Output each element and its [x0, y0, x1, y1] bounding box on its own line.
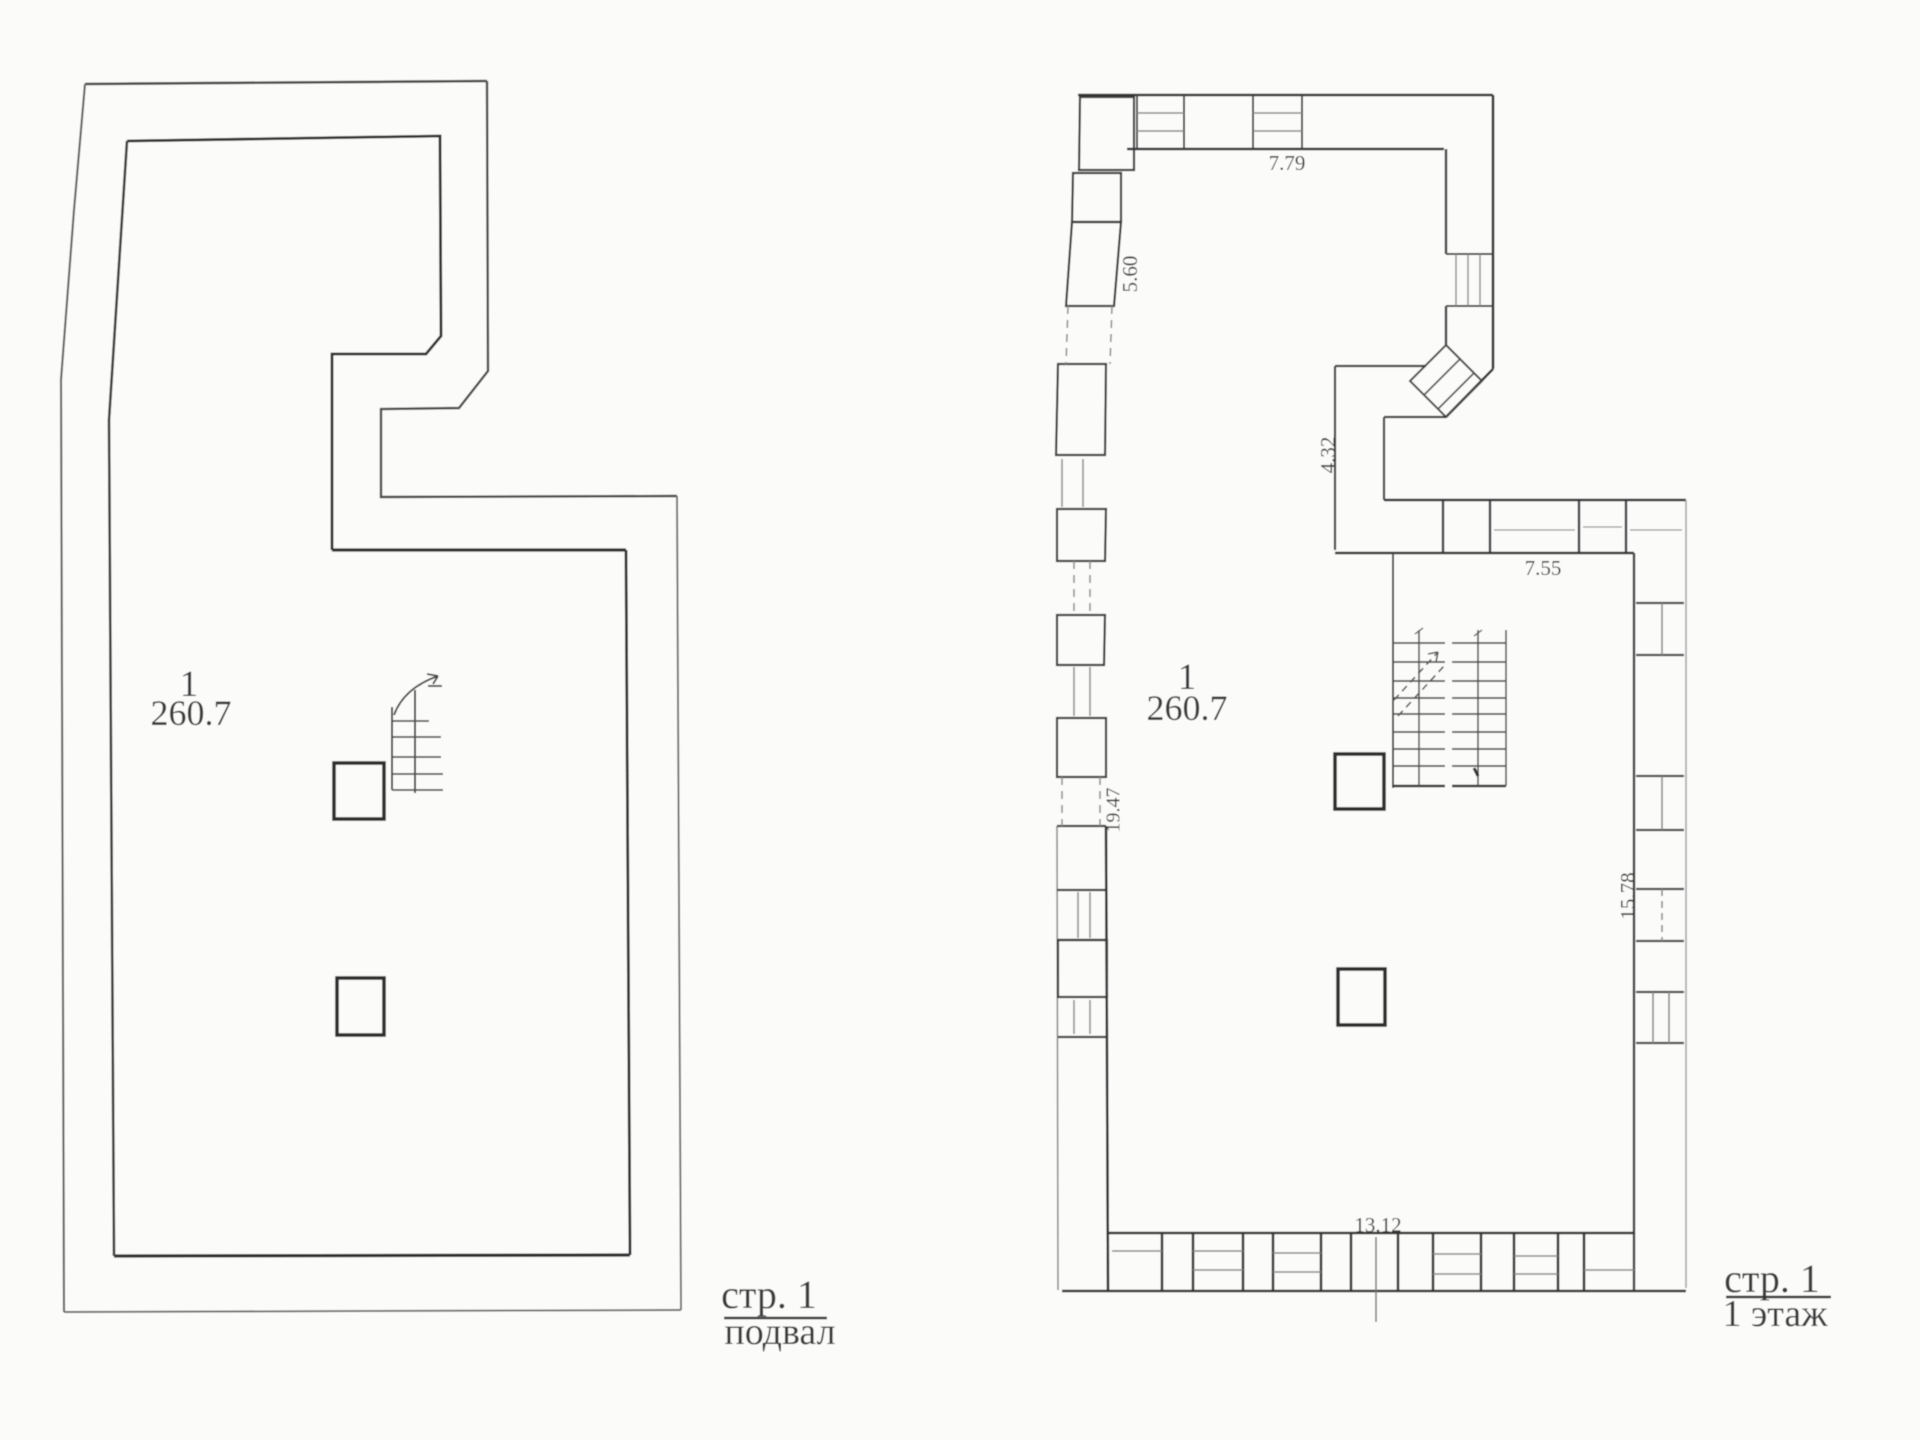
svg-text:1 этаж: 1 этаж [1722, 1293, 1828, 1335]
svg-text:19.47: 19.47 [1103, 788, 1125, 833]
svg-text:4.32: 4.32 [1316, 437, 1340, 474]
svg-text:260.7: 260.7 [151, 693, 232, 733]
svg-text:15.78: 15.78 [1616, 872, 1640, 919]
svg-text:5.60: 5.60 [1118, 256, 1142, 293]
svg-text:подвал: подвал [724, 1311, 835, 1353]
svg-text:260.7: 260.7 [1147, 688, 1228, 728]
svg-text:13.12: 13.12 [1354, 1213, 1401, 1237]
svg-text:7.55: 7.55 [1525, 556, 1562, 580]
svg-text:7.79: 7.79 [1269, 151, 1306, 175]
